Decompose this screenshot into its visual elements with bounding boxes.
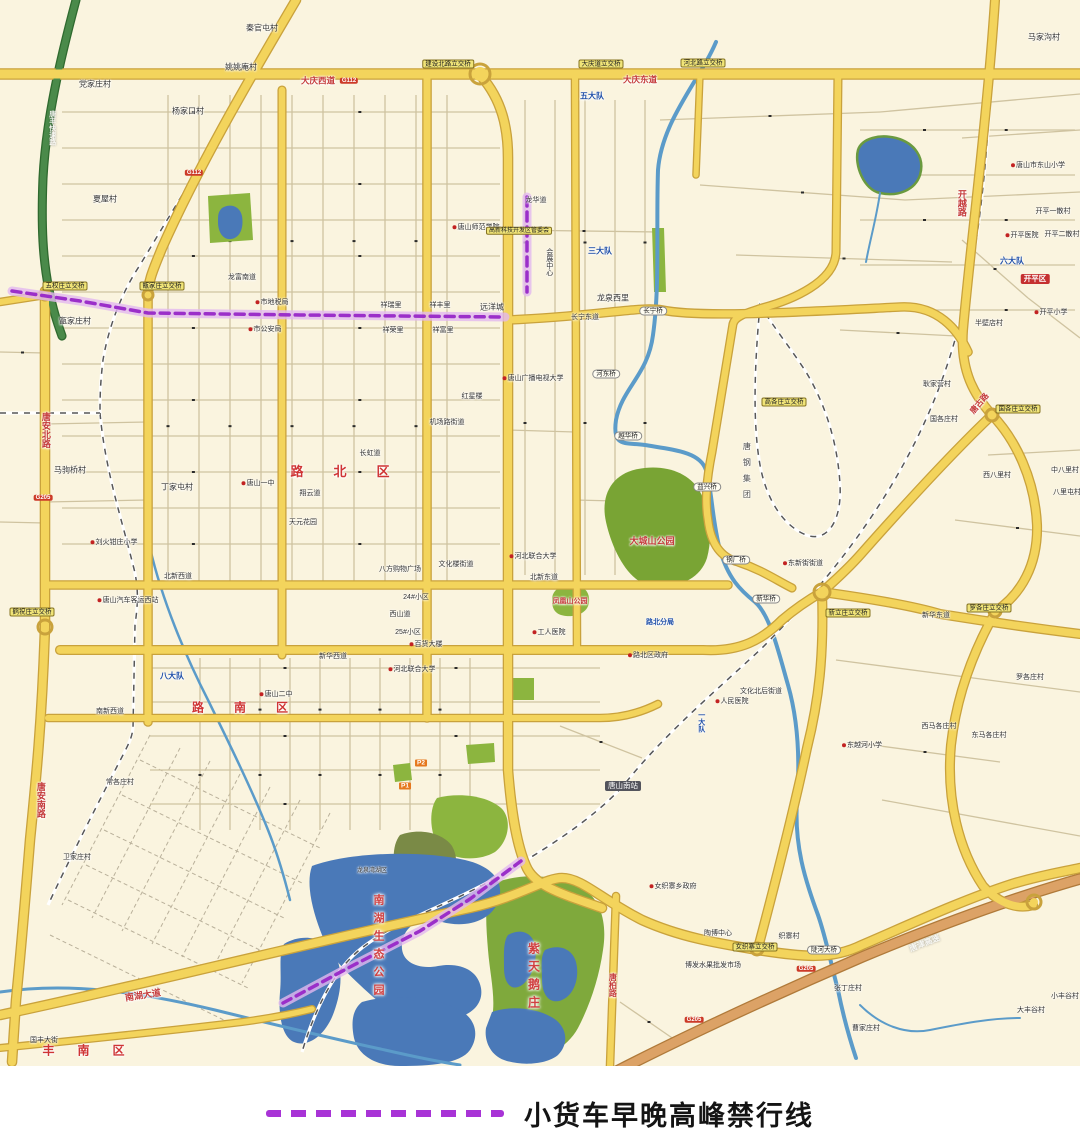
poi-dot (415, 240, 418, 242)
legend: 小货车早晚高峰禁行线 (0, 1078, 1080, 1148)
park-area (604, 468, 710, 587)
planned-street (104, 830, 284, 918)
poi-dot (644, 422, 647, 424)
poi-dot (994, 268, 997, 270)
railway (755, 305, 840, 537)
poi-dot (358, 471, 361, 473)
poi-dot (439, 709, 442, 711)
planned-street (122, 761, 210, 931)
poi-dot (923, 219, 926, 221)
map-canvas (0, 0, 1080, 1066)
interchange-icon (473, 67, 487, 81)
poi-dot (291, 425, 294, 427)
interchange-icon (989, 412, 995, 418)
poi-dot (167, 425, 170, 427)
poi-dot (358, 183, 361, 185)
poi-dot (259, 774, 262, 776)
poi-dot (319, 709, 322, 711)
planned-street (86, 865, 266, 953)
poi-dot (284, 667, 287, 669)
legend-label: 小货车早晚高峰禁行线 (524, 1094, 814, 1133)
interchange-icon (146, 293, 150, 297)
road (758, 415, 992, 948)
street (882, 800, 1080, 836)
poi-dot (379, 709, 382, 711)
street (905, 192, 1080, 200)
street (1028, 298, 1080, 338)
interchange-icon (817, 587, 827, 597)
railway (48, 413, 137, 905)
poi-dot (192, 111, 195, 113)
poi-dot (358, 399, 361, 401)
street (45, 500, 148, 502)
poi-dot (192, 327, 195, 329)
poi-dot (353, 425, 356, 427)
poi-dot (843, 258, 846, 260)
poi-dot (897, 332, 900, 334)
river (150, 548, 290, 900)
poi-dot (358, 327, 361, 329)
planned-street (182, 787, 270, 957)
poi-dot (21, 352, 24, 354)
street (880, 94, 1080, 112)
planned-street (62, 735, 150, 905)
poi-dot (284, 735, 287, 737)
road (48, 704, 658, 718)
park-area (466, 743, 495, 764)
park-area (393, 763, 412, 782)
poi-dot (358, 543, 361, 545)
poi-dot (769, 115, 772, 117)
poi-dot (358, 255, 361, 257)
poi-dot (1005, 129, 1008, 131)
poi-dot (648, 1021, 651, 1023)
poi-dot (455, 735, 458, 737)
railway (48, 413, 137, 905)
road-casing (706, 74, 838, 588)
poi-dot (379, 774, 382, 776)
river (866, 193, 880, 262)
street (508, 430, 575, 432)
interchange-icon (1030, 898, 1038, 906)
poi-dot (584, 422, 587, 424)
railway (100, 0, 300, 413)
poi-dot (924, 751, 927, 753)
poi-dot (199, 709, 202, 711)
planned-street (122, 795, 302, 883)
road (706, 74, 838, 588)
poi-dot (199, 774, 202, 776)
poi-dot (455, 667, 458, 669)
poi-dot (1016, 527, 1019, 529)
poi-dot (229, 425, 232, 427)
road-casing (481, 76, 602, 908)
poi-dot (524, 422, 527, 424)
road (575, 74, 577, 650)
road-casing (758, 415, 992, 948)
poi-dot (192, 399, 195, 401)
interchange-icon (41, 623, 49, 631)
restricted-route-line-sample (266, 1110, 504, 1117)
poi-dot (259, 709, 262, 711)
poi-dot (291, 240, 294, 242)
park-area (510, 678, 534, 700)
railway (100, 0, 300, 413)
poi-dot (192, 471, 195, 473)
poi-dot (923, 129, 926, 131)
street (988, 450, 1080, 455)
poi-dot (1005, 309, 1008, 311)
poi-dot (644, 242, 647, 244)
interchange-icon (992, 608, 998, 614)
tangshan-truck-restriction-map: 大庆西道G112大庆东道建设北路立交桥大庆道立交桥河北路立交桥秦官屯村姚姚庵村杨… (0, 0, 1080, 1148)
river (860, 1005, 1020, 1031)
poi-dot (600, 741, 603, 743)
poi-dot (353, 240, 356, 242)
poi-dot (415, 425, 418, 427)
poi-dot (319, 774, 322, 776)
poi-dot (284, 803, 287, 805)
poi-dot (358, 111, 361, 113)
poi-dot (192, 543, 195, 545)
poi-dot (584, 242, 587, 244)
poi-dot (801, 192, 804, 194)
poi-dot (192, 255, 195, 257)
poi-dot (1005, 219, 1008, 221)
street (0, 522, 45, 523)
lake (857, 137, 921, 195)
map-viewport[interactable]: 大庆西道G112大庆东道建设北路立交桥大庆道立交桥河北路立交桥秦官屯村姚姚庵村杨… (0, 0, 1080, 1066)
interchange-icon (754, 946, 760, 952)
street (45, 422, 148, 424)
road (481, 76, 602, 908)
poi-dot (439, 774, 442, 776)
poi-dot (583, 230, 586, 232)
lake (218, 206, 243, 239)
